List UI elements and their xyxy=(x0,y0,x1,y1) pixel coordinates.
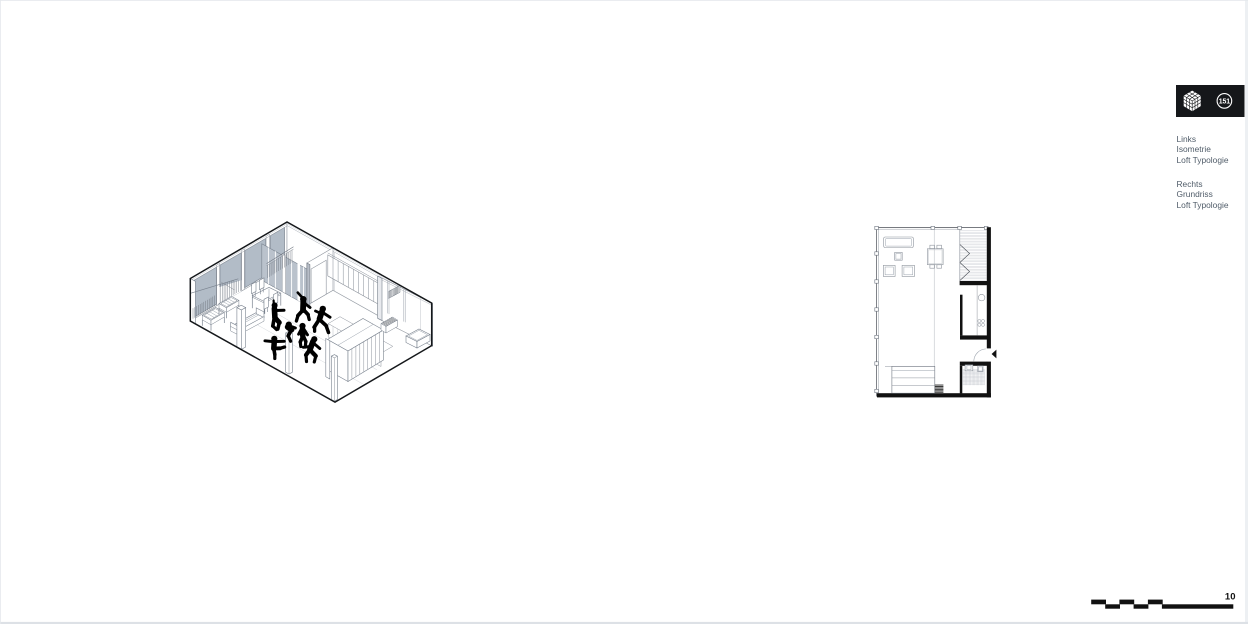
svg-text:10: 10 xyxy=(1225,592,1236,603)
svg-text:151: 151 xyxy=(1219,98,1230,105)
